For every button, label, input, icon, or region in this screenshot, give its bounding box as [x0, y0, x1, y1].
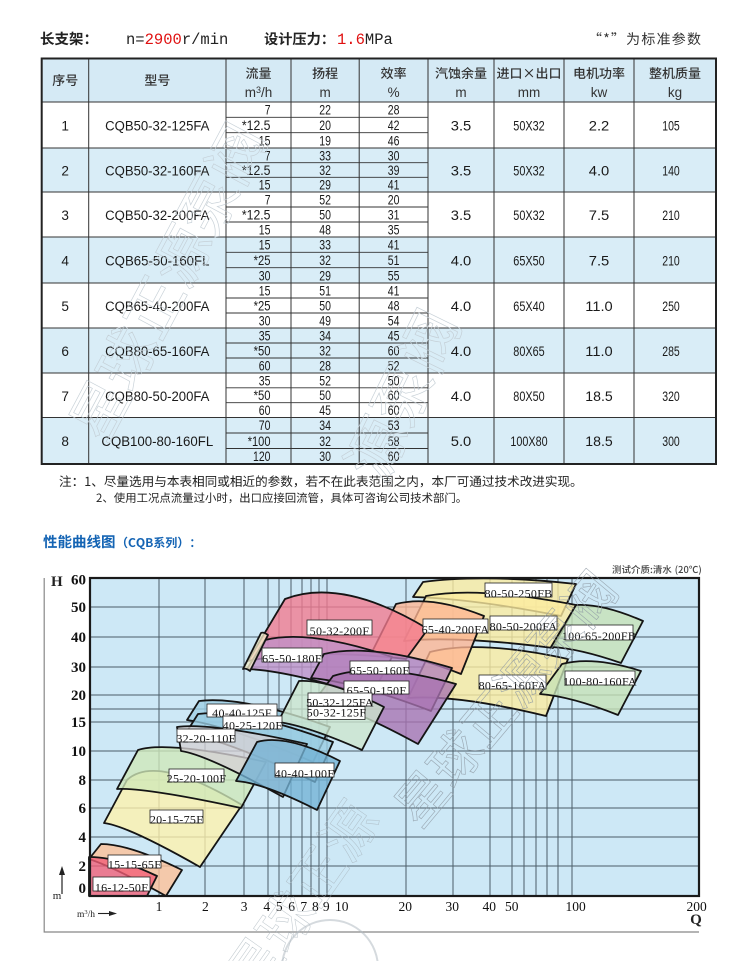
svg-text:42: 42 — [388, 118, 400, 133]
svg-text:32-20-110F: 32-20-110F — [176, 732, 235, 746]
svg-text:50: 50 — [319, 299, 331, 314]
svg-text:CQB80-65-160FA: CQB80-65-160FA — [105, 344, 209, 359]
svg-text:46: 46 — [388, 133, 400, 148]
svg-text:m: m — [319, 85, 330, 100]
svg-text:10: 10 — [335, 899, 349, 914]
svg-text:8: 8 — [61, 434, 69, 449]
svg-text:80-50-250FB: 80-50-250FB — [485, 587, 553, 601]
svg-text:3: 3 — [241, 899, 248, 914]
svg-text:4.0: 4.0 — [451, 344, 472, 359]
svg-text:65X40: 65X40 — [513, 299, 545, 314]
svg-text:*50: *50 — [254, 344, 271, 359]
svg-text:50: 50 — [71, 600, 86, 616]
svg-text:48: 48 — [388, 299, 400, 314]
svg-text:20: 20 — [319, 118, 331, 133]
svg-text:*12.5: *12.5 — [242, 118, 271, 133]
svg-text:100X80: 100X80 — [510, 434, 548, 449]
svg-text:80X65: 80X65 — [513, 344, 544, 359]
svg-text:210: 210 — [662, 208, 680, 223]
svg-text:29: 29 — [319, 268, 331, 283]
svg-text:65-50-180F: 65-50-180F — [262, 652, 322, 666]
svg-text:6: 6 — [61, 344, 69, 359]
svg-text:7.5: 7.5 — [589, 254, 610, 269]
svg-text:15: 15 — [259, 133, 271, 148]
svg-text:50: 50 — [319, 208, 331, 223]
svg-text:30: 30 — [319, 449, 331, 464]
svg-text:120: 120 — [253, 449, 271, 464]
svg-text:9: 9 — [323, 899, 330, 914]
svg-text:50X32: 50X32 — [513, 119, 544, 134]
svg-text:CQB50-32-125FA: CQB50-32-125FA — [105, 119, 209, 134]
svg-text:kg: kg — [668, 85, 682, 100]
svg-text:18.5: 18.5 — [585, 434, 612, 449]
svg-text:29: 29 — [319, 178, 331, 193]
svg-text:Q: Q — [690, 912, 702, 928]
svg-text:31: 31 — [388, 208, 400, 223]
svg-text:5: 5 — [61, 299, 69, 314]
svg-text:51: 51 — [388, 253, 400, 268]
svg-text:18.5: 18.5 — [585, 389, 612, 404]
svg-text:3.5: 3.5 — [451, 164, 472, 179]
svg-text:6: 6 — [79, 801, 87, 817]
svg-text:41: 41 — [388, 238, 400, 253]
svg-text:H: H — [51, 574, 63, 590]
svg-text:3.5: 3.5 — [451, 208, 472, 223]
svg-text:285: 285 — [662, 344, 680, 359]
svg-text:34: 34 — [319, 329, 331, 344]
svg-text:30: 30 — [71, 660, 86, 676]
svg-text:41: 41 — [388, 178, 400, 193]
svg-text:6: 6 — [288, 899, 295, 914]
svg-text:kw: kw — [591, 85, 608, 100]
svg-text:2: 2 — [79, 859, 87, 875]
svg-text:52: 52 — [319, 373, 331, 388]
svg-text:20: 20 — [388, 193, 400, 208]
svg-text:60: 60 — [388, 388, 400, 403]
svg-text:CQB50-32-200FA: CQB50-32-200FA — [105, 208, 209, 223]
svg-text:50-32-200F: 50-32-200F — [310, 624, 370, 638]
svg-text:45: 45 — [319, 403, 331, 418]
svg-text:32: 32 — [319, 253, 331, 268]
svg-text:15: 15 — [71, 715, 86, 731]
svg-text:3: 3 — [61, 208, 69, 223]
svg-text:34: 34 — [319, 418, 331, 433]
svg-text:4: 4 — [61, 254, 69, 269]
svg-text:32: 32 — [319, 434, 331, 449]
svg-text:40: 40 — [482, 899, 496, 914]
svg-text:70: 70 — [259, 418, 271, 433]
svg-text:250: 250 — [662, 299, 680, 314]
svg-text:41: 41 — [388, 284, 400, 299]
svg-text:51: 51 — [319, 284, 331, 299]
svg-text:11.0: 11.0 — [585, 299, 613, 314]
svg-text:4: 4 — [79, 830, 87, 846]
svg-text:1.6MPa: 1.6MPa — [337, 31, 393, 49]
svg-text:60: 60 — [259, 403, 271, 418]
svg-text:60: 60 — [71, 573, 86, 589]
svg-text:140: 140 — [662, 164, 680, 179]
svg-text:7: 7 — [265, 103, 271, 118]
svg-text:105: 105 — [662, 119, 680, 134]
svg-text:4.0: 4.0 — [451, 299, 472, 314]
svg-text:35: 35 — [259, 373, 271, 388]
svg-text:CQB65-40-200FA: CQB65-40-200FA — [105, 299, 209, 314]
svg-text:32: 32 — [319, 163, 331, 178]
svg-text:50: 50 — [505, 899, 519, 914]
svg-text:15: 15 — [259, 223, 271, 238]
svg-text:49: 49 — [319, 314, 331, 329]
svg-text:28: 28 — [319, 359, 331, 374]
svg-text:*25: *25 — [254, 299, 271, 314]
svg-text:30: 30 — [259, 268, 271, 283]
svg-text:35: 35 — [259, 329, 271, 344]
svg-text:*12.5: *12.5 — [242, 163, 271, 178]
svg-text:22: 22 — [319, 103, 331, 118]
svg-text:50X32: 50X32 — [513, 164, 544, 179]
svg-text:16-12-50F: 16-12-50F — [95, 881, 148, 895]
svg-text:15: 15 — [259, 238, 271, 253]
svg-text:210: 210 — [662, 254, 680, 269]
svg-text:3.5: 3.5 — [451, 119, 472, 134]
svg-text:7.5: 7.5 — [589, 208, 610, 223]
svg-text:2: 2 — [61, 164, 69, 179]
svg-text:8: 8 — [79, 773, 87, 789]
svg-text:60: 60 — [259, 359, 271, 374]
svg-text:20-15-75F: 20-15-75F — [150, 813, 203, 827]
svg-text:4.0: 4.0 — [451, 389, 472, 404]
svg-text:15: 15 — [259, 284, 271, 299]
svg-text:15-15-65F: 15-15-65F — [108, 858, 161, 872]
svg-text:100-80-160FA: 100-80-160FA — [563, 675, 637, 689]
svg-text:65-50-160F: 65-50-160F — [350, 664, 410, 678]
svg-text:80X50: 80X50 — [513, 389, 545, 404]
svg-text:65X50: 65X50 — [513, 254, 545, 269]
svg-text:11.0: 11.0 — [585, 344, 613, 359]
svg-text:39: 39 — [388, 163, 400, 178]
svg-text:*12.5: *12.5 — [242, 208, 271, 223]
svg-text:300: 300 — [662, 434, 680, 449]
svg-text:33: 33 — [319, 238, 331, 253]
svg-text:50: 50 — [319, 388, 331, 403]
svg-text:7: 7 — [265, 193, 271, 208]
svg-text:m: m — [455, 85, 466, 100]
svg-text:*25: *25 — [254, 253, 271, 268]
svg-text:1: 1 — [61, 119, 69, 134]
svg-text:0: 0 — [79, 881, 87, 897]
svg-text:28: 28 — [388, 103, 400, 118]
svg-text:54: 54 — [388, 314, 400, 329]
svg-text:2: 2 — [202, 899, 209, 914]
svg-text:25-20-100F: 25-20-100F — [167, 772, 227, 786]
svg-text:52: 52 — [319, 193, 331, 208]
svg-text:*100: *100 — [248, 434, 271, 449]
svg-text:40-40-100F: 40-40-100F — [275, 767, 335, 781]
svg-text:20: 20 — [398, 899, 412, 914]
svg-text:mm: mm — [518, 85, 541, 100]
svg-text:30: 30 — [388, 148, 400, 163]
svg-text:65-40-200FA: 65-40-200FA — [422, 623, 490, 637]
svg-text:7: 7 — [265, 148, 271, 163]
svg-text:35: 35 — [388, 223, 400, 238]
svg-text:CQB50-32-160FA: CQB50-32-160FA — [105, 164, 209, 179]
svg-text:40: 40 — [71, 630, 86, 646]
svg-text:30: 30 — [445, 899, 459, 914]
svg-text:53: 53 — [388, 418, 400, 433]
svg-text:45: 45 — [388, 329, 400, 344]
svg-text:5.0: 5.0 — [451, 434, 472, 449]
svg-text:32: 32 — [319, 344, 331, 359]
svg-text:50X32: 50X32 — [513, 208, 544, 223]
svg-text:320: 320 — [662, 389, 680, 404]
svg-text:30: 30 — [259, 314, 271, 329]
svg-text:7: 7 — [300, 899, 307, 914]
svg-text:4.0: 4.0 — [451, 254, 472, 269]
svg-text:m: m — [53, 890, 62, 902]
svg-text:CQB80-50-200FA: CQB80-50-200FA — [105, 389, 209, 404]
svg-text:7: 7 — [61, 389, 69, 404]
svg-text:15: 15 — [259, 178, 271, 193]
svg-text:CQB100-80-160FL: CQB100-80-160FL — [101, 434, 213, 449]
svg-text:2.2: 2.2 — [589, 119, 610, 134]
svg-text:*50: *50 — [254, 388, 271, 403]
svg-text:10: 10 — [71, 744, 86, 760]
svg-text:n=2900r/min: n=2900r/min — [126, 31, 228, 49]
svg-text:33: 33 — [319, 148, 331, 163]
svg-text:4.0: 4.0 — [589, 164, 610, 179]
svg-text:%: % — [388, 85, 400, 100]
svg-text:100: 100 — [565, 899, 586, 914]
svg-text:19: 19 — [319, 133, 331, 148]
svg-text:48: 48 — [319, 223, 331, 238]
svg-text:55: 55 — [388, 268, 400, 283]
svg-text:50-32-125F: 50-32-125F — [307, 706, 367, 720]
svg-text:20: 20 — [71, 688, 86, 704]
svg-text:1: 1 — [156, 899, 163, 914]
